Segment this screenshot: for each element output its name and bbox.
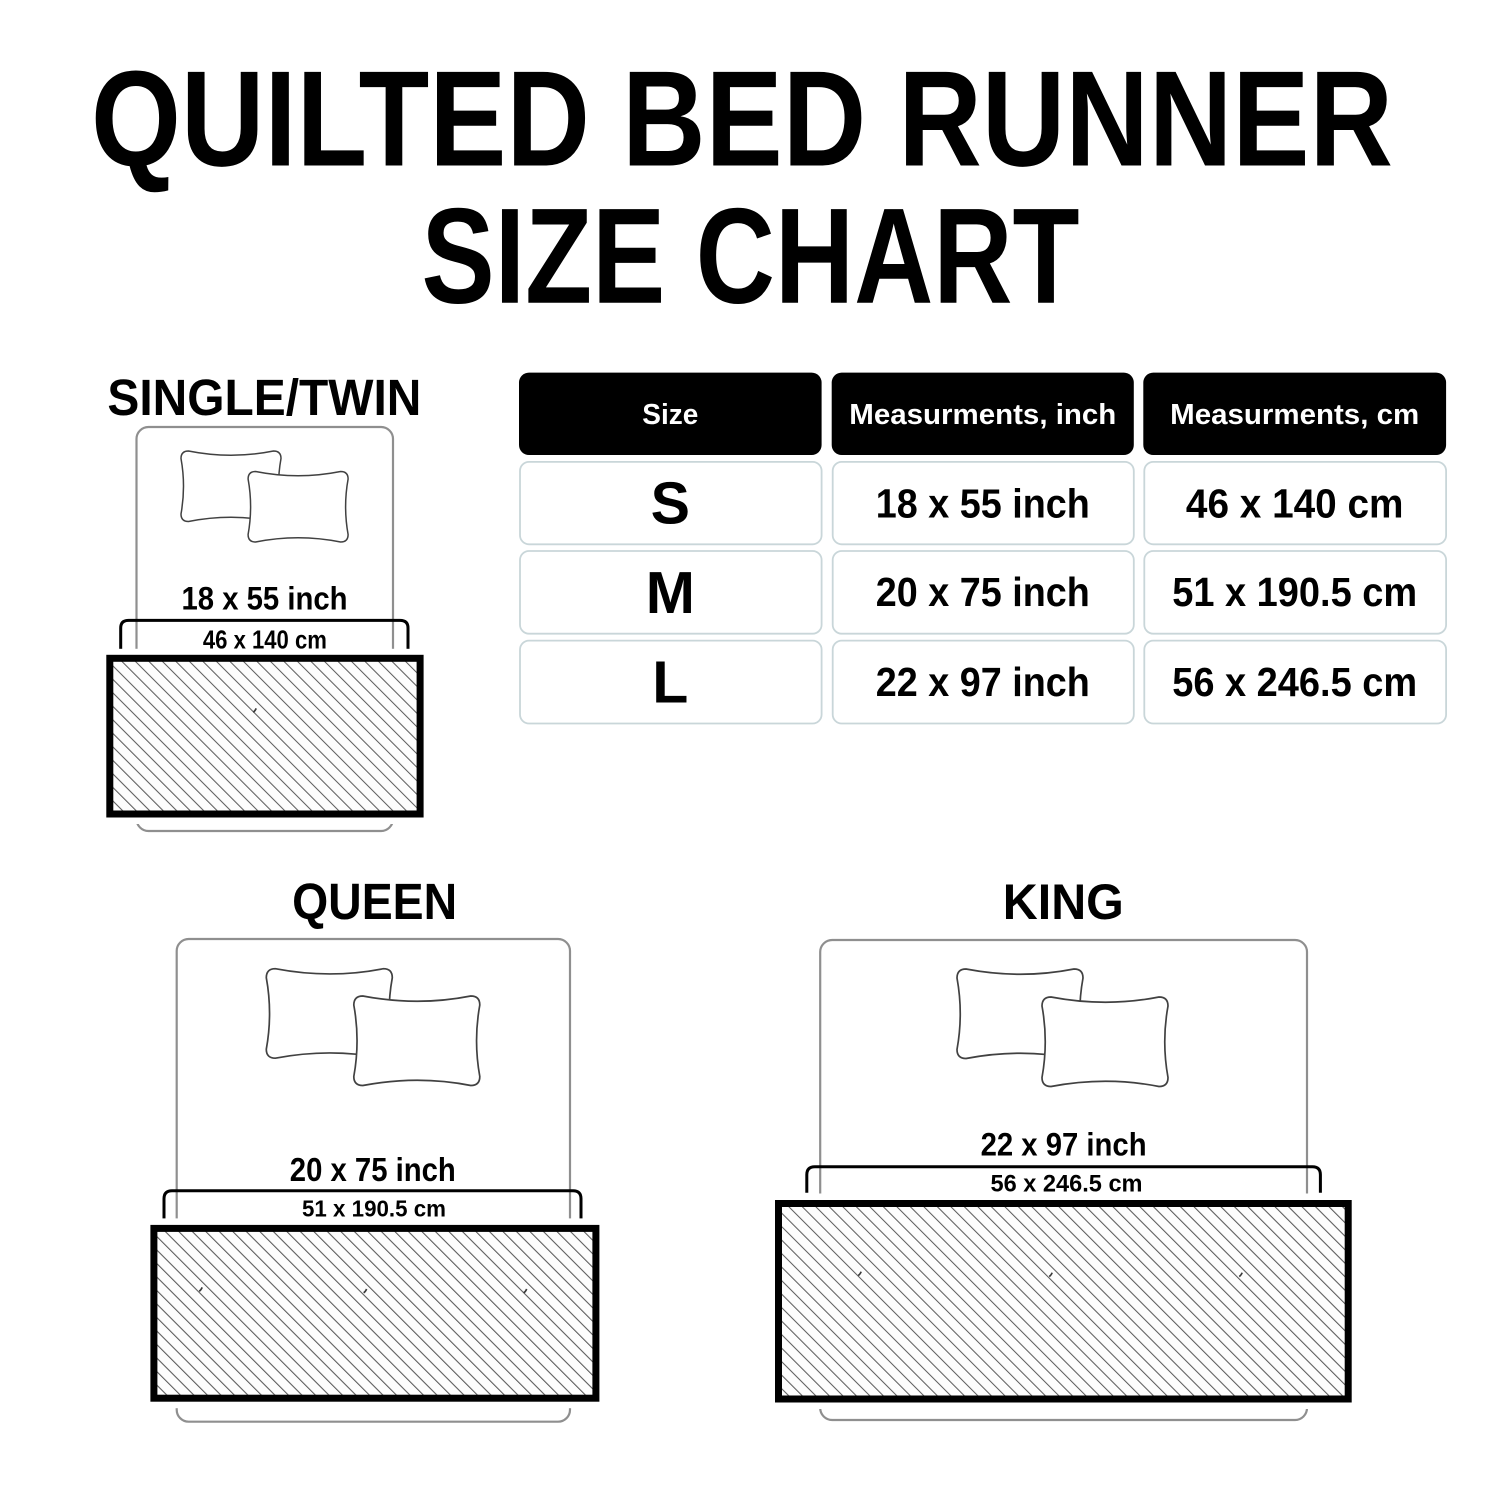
svg-text:Measurments, cm: Measurments, cm <box>1170 399 1419 431</box>
svg-text:56 x 246.5 cm: 56 x 246.5 cm <box>991 1170 1143 1197</box>
svg-text:QUILTED BED RUNNER: QUILTED BED RUNNER <box>91 43 1393 195</box>
svg-text:22 x 97 inch: 22 x 97 inch <box>876 659 1090 705</box>
svg-text:S: S <box>651 470 690 536</box>
svg-text:KING: KING <box>1003 874 1124 930</box>
svg-text:Measurments, inch: Measurments, inch <box>849 399 1116 431</box>
svg-text:QUEEN: QUEEN <box>292 873 457 930</box>
svg-text:M: M <box>646 560 695 626</box>
svg-text:18 x 55 inch: 18 x 55 inch <box>182 581 348 617</box>
svg-text:Size: Size <box>642 399 698 431</box>
svg-text:20 x 75 inch: 20 x 75 inch <box>876 569 1090 615</box>
svg-text:L: L <box>652 650 688 716</box>
svg-text:51 x 190.5 cm: 51 x 190.5 cm <box>1172 569 1417 615</box>
svg-text:22 x 97 inch: 22 x 97 inch <box>981 1127 1147 1163</box>
svg-text:SIZE CHART: SIZE CHART <box>422 180 1080 332</box>
svg-text:46 x 140 cm: 46 x 140 cm <box>1186 480 1404 526</box>
svg-text:SINGLE/TWIN: SINGLE/TWIN <box>107 369 421 426</box>
svg-text:18 x 55 inch: 18 x 55 inch <box>876 480 1090 526</box>
svg-text:20 x 75 inch: 20 x 75 inch <box>290 1151 456 1188</box>
svg-text:56 x 246.5 cm: 56 x 246.5 cm <box>1172 659 1417 705</box>
svg-text:51 x 190.5 cm: 51 x 190.5 cm <box>302 1196 446 1222</box>
